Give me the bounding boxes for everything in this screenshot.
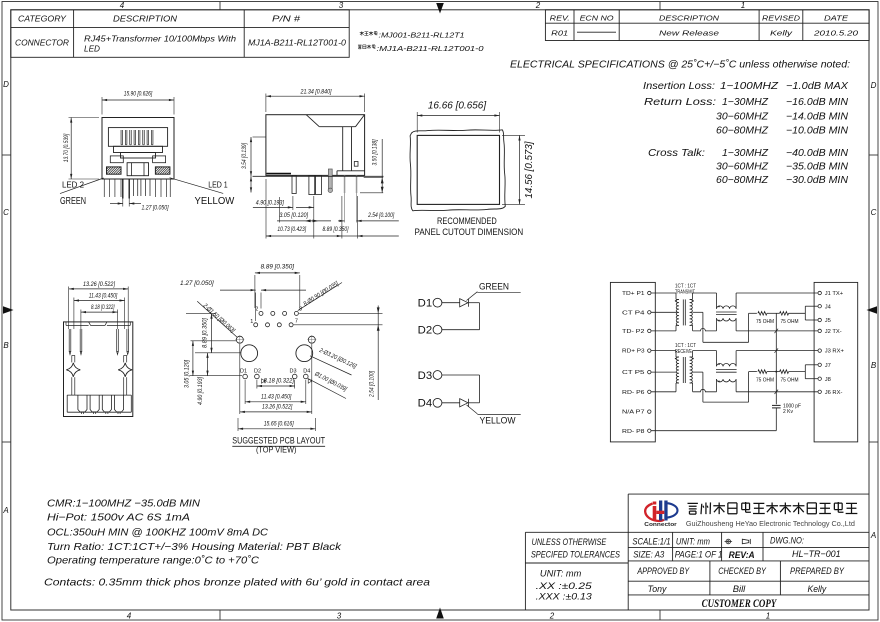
svg-text:2.54 [0.100]: 2.54 [0.100]: [367, 212, 394, 219]
svg-text:D1: D1: [240, 369, 247, 375]
svg-text:R01: R01: [551, 28, 568, 37]
svg-text:D4: D4: [418, 398, 433, 410]
svg-text:Cross Talk:: Cross Talk:: [648, 148, 705, 159]
svg-text:SIZE: A3: SIZE: A3: [633, 550, 665, 560]
svg-text:REV.: REV.: [550, 13, 570, 22]
svg-text:D: D: [871, 81, 877, 90]
svg-text:Bill: Bill: [733, 584, 746, 594]
svg-text:RECOMMENDED: RECOMMENDED: [437, 216, 497, 227]
svg-text:Hi−Pot: 1500v AC 6S 1mA: Hi−Pot: 1500v AC 6S 1mA: [47, 512, 190, 524]
svg-text:30−60MHZ: 30−60MHZ: [716, 112, 769, 123]
svg-text:13.26 [0.522]: 13.26 [0.522]: [262, 403, 293, 410]
svg-text:UNLESS OTHERWISE: UNLESS OTHERWISE: [532, 537, 607, 547]
svg-text:D: D: [3, 80, 9, 89]
svg-text:DWG.NO:: DWG.NO:: [770, 536, 804, 546]
svg-text:RD- P8: RD- P8: [622, 429, 645, 435]
svg-text:J8: J8: [825, 377, 831, 383]
svg-text:13.26 [0.522]: 13.26 [0.522]: [83, 281, 115, 288]
svg-text:New Release: New Release: [659, 28, 719, 37]
svg-text:75 OHM: 75 OHM: [781, 319, 799, 325]
svg-text:D2: D2: [254, 369, 261, 375]
svg-text:Connector: Connector: [644, 522, 677, 528]
svg-text:3.54 [0.139]: 3.54 [0.139]: [241, 143, 248, 169]
svg-text:−16.0dB MIN: −16.0dB MIN: [786, 97, 849, 108]
svg-text:8.89 [0.350]: 8.89 [0.350]: [323, 226, 349, 233]
svg-text:1: 1: [766, 612, 770, 621]
svg-text:TRANSMIT: TRANSMIT: [675, 289, 695, 295]
svg-text:RD+ P3: RD+ P3: [622, 349, 645, 355]
svg-text:SCALE:1/1: SCALE:1/1: [632, 536, 670, 546]
svg-text:−1.0dB MAX: −1.0dB MAX: [786, 81, 848, 92]
svg-text:PAGE:1 OF 1: PAGE:1 OF 1: [675, 550, 723, 560]
svg-text:Turn Ratio: 1CT:1CT+/−3%: Turn Ratio: 1CT:1CT+/−3% Housing Materia…: [47, 541, 342, 553]
svg-text:RD- P6: RD- P6: [622, 390, 645, 396]
svg-text:A: A: [2, 506, 8, 515]
svg-text:CONNECTOR: CONNECTOR: [15, 39, 69, 48]
svg-text:CHECKED BY: CHECKED BY: [718, 566, 766, 576]
svg-text:.XX :±0.25: .XX :±0.25: [536, 581, 593, 591]
svg-text:DESCRIPTION: DESCRIPTION: [659, 13, 720, 22]
svg-text:60−80MHZ: 60−80MHZ: [716, 126, 769, 137]
svg-text:CUSTOMER COPY: CUSTOMER COPY: [702, 596, 778, 610]
svg-text:CMR:1−100MHZ −35.0dB MIN: CMR:1−100MHZ −35.0dB MIN: [47, 497, 200, 509]
svg-text:60−80MHZ: 60−80MHZ: [716, 175, 769, 186]
svg-text:4.90 [0.193]: 4.90 [0.193]: [256, 199, 284, 206]
svg-text:D1: D1: [418, 298, 433, 310]
svg-text:Tony: Tony: [648, 584, 668, 594]
svg-text:75 OHM: 75 OHM: [756, 377, 774, 383]
svg-text:B: B: [3, 341, 9, 350]
svg-text:1: 1: [250, 319, 253, 325]
svg-text:11.43 [0.450]: 11.43 [0.450]: [261, 393, 292, 400]
svg-text:C: C: [871, 208, 877, 217]
svg-text:YELLOW: YELLOW: [480, 416, 516, 427]
svg-text:16.66 [0.656]: 16.66 [0.656]: [428, 100, 487, 112]
svg-text:RJ45+Transformer 10/100Mbps: RJ45+Transformer 10/100Mbps With: [84, 35, 237, 44]
svg-text:1−100MHZ: 1−100MHZ: [720, 81, 779, 92]
svg-text:−30.0dB MIN: −30.0dB MIN: [786, 175, 849, 186]
svg-text:APPROVED BY: APPROVED BY: [637, 566, 690, 576]
svg-text::MJ001-B211-RL12T1: :MJ001-B211-RL12T1: [379, 31, 465, 40]
svg-text:UNIT: mm: UNIT: mm: [676, 536, 710, 546]
svg-text:D4: D4: [303, 369, 310, 375]
svg-text:4: 4: [120, 1, 125, 10]
svg-text:Operating temperature range:: Operating temperature range:0˚C to +70˚C: [47, 555, 259, 567]
svg-text:Kelly: Kelly: [770, 28, 794, 37]
svg-text:TD- P2: TD- P2: [622, 329, 645, 335]
svg-text:ECN NO: ECN NO: [580, 13, 614, 22]
svg-text:8.18 [0.322]: 8.18 [0.322]: [264, 377, 295, 384]
svg-text:−10.0dB MIN: −10.0dB MIN: [786, 126, 849, 137]
svg-text:J4: J4: [825, 304, 832, 310]
svg-text:11.43 [0.450]: 11.43 [0.450]: [89, 293, 118, 300]
svg-text:PANEL CUTOUT DIMENSION: PANEL CUTOUT DIMENSION: [415, 227, 524, 238]
svg-text:1−30MHZ: 1−30MHZ: [722, 97, 769, 108]
svg-text:MJ1A-B211-RL12T001-0: MJ1A-B211-RL12T001-0: [248, 39, 347, 48]
svg-text:P/N #: P/N #: [272, 15, 301, 24]
svg-text:8.89 [0.350]: 8.89 [0.350]: [261, 263, 295, 270]
svg-text:2: 2: [535, 1, 541, 10]
svg-text:CATEGORY: CATEGORY: [18, 15, 67, 24]
svg-text:7: 7: [295, 319, 298, 325]
svg-text:LED 2: LED 2: [62, 181, 85, 190]
svg-text:YELLOW: YELLOW: [195, 196, 235, 207]
svg-text:DESCRIPTION: DESCRIPTION: [113, 15, 177, 24]
svg-text:C: C: [3, 208, 9, 217]
svg-text::MJ1A-B211-RL12T001-0: :MJ1A-B211-RL12T001-0: [377, 44, 484, 53]
svg-text:3.05 [0.120]: 3.05 [0.120]: [183, 360, 190, 388]
svg-text:−35.0dB MIN: −35.0dB MIN: [786, 162, 849, 173]
svg-text:J5: J5: [825, 318, 831, 324]
svg-text:D3: D3: [418, 370, 433, 382]
svg-text:15.65 [0.616]: 15.65 [0.616]: [264, 420, 294, 427]
svg-text:GREEN: GREEN: [479, 282, 509, 293]
svg-text:GREEN: GREEN: [60, 196, 86, 207]
svg-text:15.90 [0.626]: 15.90 [0.626]: [124, 90, 153, 97]
svg-text:REVISED: REVISED: [762, 13, 801, 22]
svg-text:30−60MHZ: 30−60MHZ: [716, 162, 769, 173]
svg-text:4.90 [0.193]: 4.90 [0.193]: [197, 377, 204, 405]
svg-text:ELECTRICAL SPECIFICATIONS @: ELECTRICAL SPECIFICATIONS @ 25˚C+/−5˚C u…: [510, 59, 850, 71]
svg-text:3: 3: [339, 1, 344, 10]
svg-text:Insertion Loss:: Insertion Loss:: [643, 81, 715, 92]
svg-text:2: 2: [549, 612, 555, 621]
svg-text:RECEIVE: RECEIVE: [675, 349, 693, 355]
svg-text:3.50 [0.138]: 3.50 [0.138]: [372, 139, 379, 165]
svg-text:HL−TR−001: HL−TR−001: [792, 549, 841, 559]
svg-text:3.05 [0.120]: 3.05 [0.120]: [279, 212, 308, 219]
svg-text:CT P4: CT P4: [622, 310, 646, 316]
svg-text:PREPARED BY: PREPARED BY: [790, 566, 845, 576]
svg-text:10.73 [0.423]: 10.73 [0.423]: [277, 226, 306, 233]
svg-text:13.70 [0.539]: 13.70 [0.539]: [63, 134, 70, 163]
svg-text:DATE: DATE: [824, 13, 849, 22]
svg-text:21.34 [0.840]: 21.34 [0.840]: [300, 88, 332, 95]
svg-text:1.27 [0.050]: 1.27 [0.050]: [142, 205, 169, 212]
svg-text:N/A P7: N/A P7: [622, 410, 645, 416]
svg-text:J6 RX-: J6 RX-: [825, 390, 843, 396]
svg-text:TD+ P1: TD+ P1: [622, 291, 645, 297]
svg-text:75 OHM: 75 OHM: [781, 377, 799, 383]
svg-text:D3: D3: [289, 369, 296, 375]
svg-text:8.18 [0.322]: 8.18 [0.322]: [91, 304, 115, 311]
svg-text:75 OHM: 75 OHM: [756, 319, 774, 325]
svg-text:UNIT: mm: UNIT: mm: [540, 569, 582, 579]
svg-text:J1 TX+: J1 TX+: [825, 291, 844, 297]
svg-text:CT P5: CT P5: [622, 370, 645, 376]
svg-text:2 Kv: 2 Kv: [783, 409, 793, 415]
svg-text:(TOP VIEW): (TOP VIEW): [256, 444, 297, 454]
svg-text:Return Loss:: Return Loss:: [644, 97, 716, 108]
svg-text:A: A: [870, 531, 876, 540]
svg-text:J2 TX-: J2 TX-: [825, 329, 842, 335]
svg-text:3: 3: [337, 612, 342, 621]
svg-text:Kelly: Kelly: [807, 584, 827, 594]
svg-text:B: B: [871, 361, 877, 370]
svg-text:J3 RX+: J3 RX+: [825, 349, 845, 355]
svg-text:.XXX :±0.13: .XXX :±0.13: [536, 591, 593, 601]
svg-text:REV:A: REV:A: [729, 550, 755, 560]
svg-text:−14.0dB MIN: −14.0dB MIN: [786, 112, 849, 123]
svg-text:GuiZhousheng HeYao Electronic: GuiZhousheng HeYao Electronic Technology…: [686, 519, 855, 528]
svg-text:2010.5.20: 2010.5.20: [813, 28, 859, 37]
svg-text:−40.0dB MIN: −40.0dB MIN: [786, 148, 849, 159]
svg-text:8.89 [0.350]: 8.89 [0.350]: [202, 318, 209, 348]
svg-text:LED 1: LED 1: [208, 181, 228, 190]
svg-text:Contacts: 0.35mm thick phos: Contacts: 0.35mm thick phos bronze plate…: [44, 576, 430, 588]
svg-text:1.27 [0.050]: 1.27 [0.050]: [180, 280, 214, 287]
svg-text:1: 1: [741, 1, 745, 10]
svg-text:4: 4: [127, 612, 132, 621]
svg-text:SPECIFED TOLERANCES: SPECIFED TOLERANCES: [531, 550, 621, 560]
svg-text:D2: D2: [418, 325, 433, 337]
svg-text:J7: J7: [825, 363, 831, 369]
svg-text:2.54 [0.100]: 2.54 [0.100]: [369, 371, 376, 398]
svg-text:LED: LED: [84, 45, 100, 54]
svg-text:14.56 [0.573]: 14.56 [0.573]: [523, 141, 535, 199]
svg-text:1−30MHZ: 1−30MHZ: [722, 148, 769, 159]
svg-text:OCL:350uH MIN @ 100KHZ 100: OCL:350uH MIN @ 100KHZ 100mV 8mA DC: [47, 526, 268, 538]
